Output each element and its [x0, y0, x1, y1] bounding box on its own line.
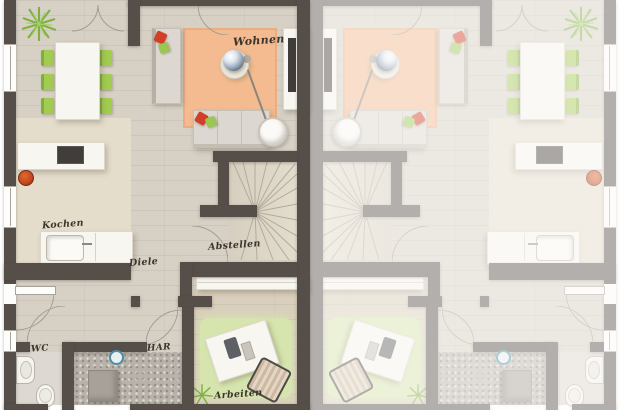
dining-chair: [508, 98, 521, 114]
wall-wc-east: [546, 342, 558, 410]
smoke-detector-icon: [109, 350, 124, 365]
staircase: [323, 162, 391, 260]
dining-chair: [41, 74, 54, 90]
counter-divider: [95, 233, 96, 261]
floorplan: Wohnen Kochen Diele Abstellen WC HAR Arb…: [0, 0, 620, 410]
wall-wc-north: [16, 342, 30, 352]
floor-kitchen: [489, 118, 604, 263]
window: [4, 44, 16, 92]
wall-left-outer: [604, 0, 616, 410]
room-label-utility: HAR: [147, 342, 172, 354]
wall-wc-north: [590, 342, 604, 352]
wall-bottom: [4, 404, 48, 410]
arc-lamp-stem: [350, 69, 373, 128]
wc-door-arc: [555, 306, 593, 344]
wall-wc-east: [62, 342, 74, 410]
chaise-longue: [439, 28, 468, 104]
sofa-pillow-green: [403, 116, 416, 129]
wall-stair-north: [213, 151, 297, 162]
decor-sphere: [376, 50, 397, 71]
terrace-door-arc: [198, 5, 228, 35]
wc-sink-basin: [588, 361, 600, 379]
terrace-door-arc: [496, 5, 548, 33]
wall-stair-stub-v: [218, 162, 229, 206]
storage-door-arc: [392, 226, 428, 262]
arc-lamp-shade: [332, 117, 362, 147]
dining-chair: [41, 98, 54, 114]
wall-office-north: [178, 296, 212, 307]
office-door-arc: [140, 307, 178, 345]
chaise-pillow-red: [452, 30, 467, 45]
living-rug-runner: [343, 128, 390, 142]
window: [604, 186, 616, 228]
toilet-seat: [568, 388, 581, 403]
wall-office-north: [408, 296, 442, 307]
terrace-door-arc: [72, 5, 124, 33]
living-rug: [343, 28, 437, 128]
utility-device: [88, 370, 118, 402]
wall-stair-stub-h: [200, 205, 257, 217]
tv: [288, 38, 296, 92]
storage-shelf: [312, 277, 424, 290]
front-door-leaf: [15, 286, 56, 295]
decor-sphere: [223, 50, 244, 71]
floor-main: [310, 0, 616, 405]
plant-icon: [406, 383, 430, 407]
wall-top: [323, 0, 492, 6]
kitchen-counter-top: [515, 142, 603, 170]
dining-chair: [99, 74, 112, 90]
wall-bottom: [310, 404, 490, 410]
dining-chair: [99, 98, 112, 114]
wall-storage-south: [323, 262, 428, 277]
floor-wc: [558, 352, 604, 405]
dining-chair: [41, 50, 54, 66]
wall-hall-v: [428, 262, 440, 302]
tv-sideboard: [313, 28, 337, 110]
smoke-detector-icon: [496, 350, 511, 365]
office-desk: [340, 319, 415, 383]
dining-table: [520, 42, 565, 120]
desk-laptop: [378, 336, 397, 359]
cooktop: [57, 146, 84, 164]
wall-utility-north: [65, 342, 147, 352]
storage-shelf: [196, 277, 308, 290]
floor-office: [323, 289, 426, 405]
wall-office-west: [426, 307, 438, 410]
wall-party: [310, 0, 323, 410]
wall-kitchen-south: [4, 263, 131, 280]
utility-device: [502, 370, 532, 402]
toilet-seat: [39, 388, 52, 403]
window-wc: [4, 330, 16, 352]
wall-stair-stub-h: [363, 205, 420, 217]
dining-chair: [566, 98, 579, 114]
utility-door-arc: [438, 310, 474, 344]
front-door-opening: [604, 284, 616, 304]
office-chair: [328, 356, 375, 404]
plant-icon: [20, 5, 58, 43]
dining-table: [55, 42, 100, 120]
wc-door-arc: [27, 306, 65, 344]
kitchen-counter-sink: [487, 231, 580, 265]
wall-office-north: [480, 296, 489, 307]
dining-chair: [566, 50, 579, 66]
room-label-hallway: Diele: [129, 256, 159, 269]
arc-lamp-base: [369, 55, 377, 63]
arc-lamp-shade: [258, 117, 288, 147]
side-table: [371, 50, 400, 79]
wall-office-north: [131, 296, 140, 307]
fruit-bowl: [18, 170, 34, 186]
chaise-pillow-green: [450, 42, 463, 55]
floor-utility: [438, 352, 546, 405]
unit-right: Wohnen Kochen Diele Abstellen WC HAR Arb…: [310, 0, 620, 410]
wall-party: [297, 0, 310, 410]
wall-storage-south: [192, 262, 297, 277]
window: [604, 44, 616, 92]
wall-top-stub: [128, 0, 140, 46]
fruit-bowl: [586, 170, 602, 186]
sofa-pillow-red: [411, 111, 426, 126]
staircase-treads: [323, 162, 391, 260]
wall-utility-north: [473, 342, 555, 352]
wall-top-stub: [480, 0, 492, 46]
sink-faucet: [82, 243, 92, 245]
toilet: [565, 384, 584, 407]
wall-bottom: [130, 404, 310, 410]
front-door-arc: [566, 292, 604, 332]
wc-sink-basin: [20, 361, 32, 379]
front-door-leaf: [564, 286, 605, 295]
wall-bottom: [572, 404, 616, 410]
terrace-door-arc: [392, 5, 422, 35]
window: [4, 186, 16, 228]
plant-icon: [562, 5, 600, 43]
dining-chair: [566, 74, 579, 90]
desk-keyboard: [364, 341, 379, 361]
dining-chair: [508, 50, 521, 66]
window-wc: [604, 330, 616, 352]
wall-office-west: [182, 307, 194, 410]
dining-chair: [508, 74, 521, 90]
room-label-wc: WC: [31, 343, 50, 354]
kitchen-sink: [46, 235, 84, 261]
kitchen-sink: [536, 235, 574, 261]
sink-faucet: [528, 243, 538, 245]
wc-sink: [585, 356, 604, 384]
wall-stair-north: [323, 151, 407, 162]
arc-lamp-base: [243, 55, 251, 63]
cooktop: [536, 146, 563, 164]
office-door-arc: [442, 307, 480, 345]
wall-kitchen-south: [489, 263, 616, 280]
sofa: [350, 110, 427, 148]
dining-chair: [99, 50, 112, 66]
counter-divider: [524, 233, 525, 261]
wall-top: [128, 0, 297, 6]
office-rug: [328, 318, 420, 398]
unit-left: Wohnen Kochen Diele Abstellen WC HAR Arb…: [0, 0, 310, 410]
wall-stair-stub-v: [391, 162, 402, 206]
tv: [324, 38, 332, 92]
